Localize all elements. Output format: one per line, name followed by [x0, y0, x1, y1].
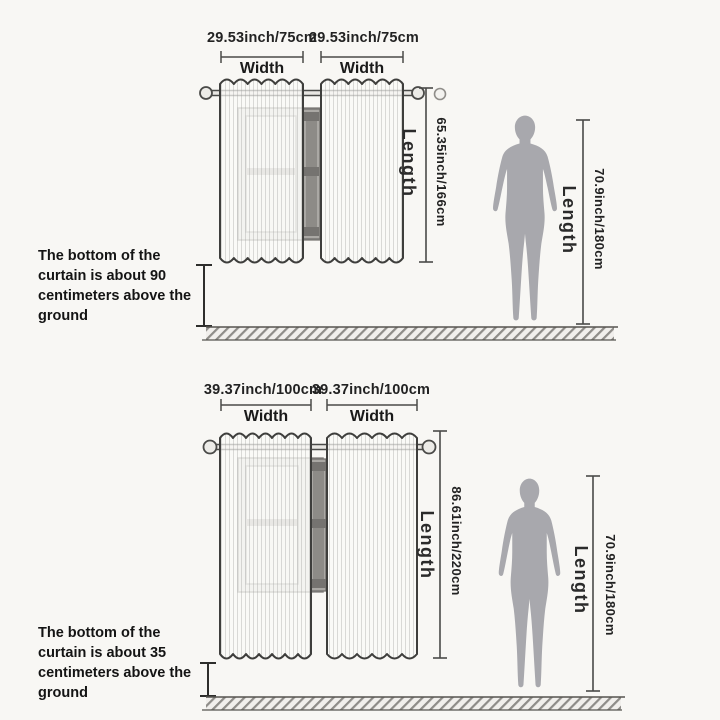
curtain-length-value: 86.61inch/220cm: [446, 466, 468, 616]
curtain-length-value: 65.35inch/166cm: [431, 97, 453, 247]
panel-width-dimension: 29.53inch/75cm: [289, 30, 439, 46]
curtain-panel-left: [220, 434, 311, 659]
note-line: centimeters above the: [38, 663, 191, 683]
note-line: The bottom of the: [38, 623, 191, 643]
note-line: centimeters above the: [38, 286, 191, 306]
curtain-length-label: Length: [416, 495, 438, 595]
ground-gap-line: [200, 663, 216, 696]
person-height-value: 70.9inch/180cm: [600, 510, 622, 660]
width-axis-label: Width: [322, 408, 422, 426]
ground-clearance-note: The bottom of the curtain is about 90 ce…: [38, 246, 191, 326]
width-axis-label: Width: [212, 60, 312, 78]
curtain-size-diagram: 29.53inch/75cm 29.53inch/75cm Width Widt…: [0, 0, 720, 720]
curtain-panel-right: [327, 434, 417, 659]
diagram-bottom: [200, 399, 625, 710]
person-silhouette: [493, 116, 557, 321]
curtain-panel-right: [321, 80, 403, 263]
note-line: The bottom of the: [38, 246, 191, 266]
width-axis-label: Width: [216, 408, 316, 426]
ground-gap-line: [196, 265, 212, 326]
note-line: ground: [38, 683, 191, 703]
ground: [202, 697, 625, 710]
note-line: curtain is about 90: [38, 266, 191, 286]
note-line: ground: [38, 306, 191, 326]
ground: [202, 327, 618, 340]
curtain-panel-left: [220, 80, 303, 263]
ground-clearance-note: The bottom of the curtain is about 35 ce…: [38, 623, 191, 703]
person-silhouette: [499, 479, 561, 688]
panel-width-dimension: 39.37inch/100cm: [296, 382, 446, 398]
person-height-value: 70.9inch/180cm: [589, 144, 611, 294]
curtain-length-label: Length: [398, 113, 420, 213]
width-axis-label: Width: [312, 60, 412, 78]
person-height-label: Length: [570, 530, 592, 630]
note-line: curtain is about 35: [38, 643, 191, 663]
person-height-label: Length: [558, 170, 580, 270]
